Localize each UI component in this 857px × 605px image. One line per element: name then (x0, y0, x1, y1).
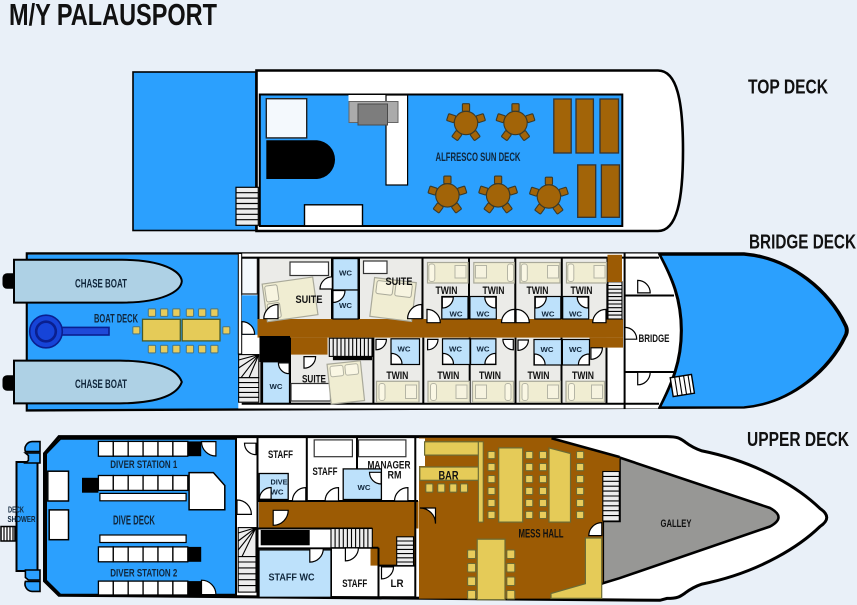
svg-text:WC: WC (450, 310, 464, 319)
svg-text:TWIN: TWIN (572, 370, 594, 382)
svg-text:DIVER STATION 2: DIVER STATION 2 (110, 568, 177, 580)
svg-text:STAFF WC: STAFF WC (269, 572, 315, 584)
svg-text:WC: WC (569, 345, 583, 354)
svg-text:TWIN: TWIN (571, 285, 593, 297)
svg-text:CHASE BOAT: CHASE BOAT (75, 277, 127, 291)
svg-text:STAFF: STAFF (313, 466, 338, 478)
svg-text:WC: WC (339, 269, 353, 278)
svg-text:WC: WC (270, 382, 284, 391)
svg-text:SUITE: SUITE (386, 276, 413, 288)
svg-text:TWIN: TWIN (436, 285, 458, 297)
svg-text:WC: WC (541, 345, 555, 354)
svg-text:WC: WC (569, 310, 583, 319)
svg-text:WC: WC (358, 483, 372, 492)
svg-text:TWIN: TWIN (386, 370, 408, 382)
svg-text:STAFF: STAFF (268, 449, 293, 461)
svg-text:TWIN: TWIN (437, 370, 459, 382)
svg-text:LR: LR (391, 578, 404, 590)
svg-text:M/Y PALAUSPORT: M/Y PALAUSPORT (9, 0, 217, 32)
svg-text:BRIDGE DECK: BRIDGE DECK (749, 231, 856, 254)
svg-text:TWIN: TWIN (528, 370, 550, 382)
svg-text:WC: WC (339, 301, 353, 310)
svg-text:BAR: BAR (439, 471, 460, 483)
svg-text:MESS HALL: MESS HALL (519, 529, 564, 541)
svg-text:TWIN: TWIN (483, 285, 505, 297)
svg-text:SUITE: SUITE (296, 294, 323, 306)
svg-text:GALLEY: GALLEY (661, 518, 692, 530)
svg-text:BOAT DECK: BOAT DECK (94, 314, 138, 326)
svg-text:ALFRESCO SUN DECK: ALFRESCO SUN DECK (436, 152, 521, 164)
svg-text:DIVE: DIVE (271, 478, 288, 487)
svg-text:CHASE BOAT: CHASE BOAT (75, 377, 127, 391)
svg-text:WC: WC (542, 310, 556, 319)
svg-text:WC: WC (271, 488, 285, 497)
svg-text:WC: WC (477, 310, 491, 319)
svg-text:DIVER STATION 1: DIVER STATION 1 (110, 459, 177, 471)
svg-text:TWIN: TWIN (527, 285, 549, 297)
svg-text:DECK: DECK (8, 505, 25, 515)
svg-text:SHOWER: SHOWER (8, 514, 36, 524)
svg-text:DIVE DECK: DIVE DECK (113, 514, 155, 528)
svg-text:UPPER DECK: UPPER DECK (747, 428, 849, 451)
svg-text:STAFF: STAFF (342, 578, 367, 590)
svg-text:TOP DECK: TOP DECK (748, 76, 828, 99)
svg-text:WC: WC (449, 345, 463, 354)
svg-text:RM: RM (388, 470, 402, 482)
svg-text:WC: WC (398, 345, 412, 354)
svg-text:BRIDGE: BRIDGE (639, 333, 670, 345)
svg-text:TWIN: TWIN (479, 370, 501, 382)
svg-text:SUITE: SUITE (302, 374, 326, 386)
svg-text:WC: WC (477, 345, 491, 354)
